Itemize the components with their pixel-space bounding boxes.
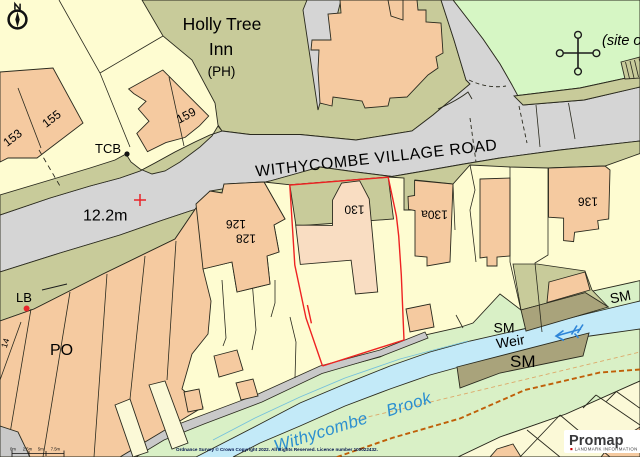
svg-text:(PH): (PH) bbox=[208, 64, 236, 79]
svg-text:0m 2.5m 5m 7.5m: 0m 2.5m 5m 7.5m bbox=[10, 447, 61, 452]
svg-text:PO: PO bbox=[50, 342, 73, 359]
svg-text:LB: LB bbox=[16, 290, 32, 305]
svg-text:Inn: Inn bbox=[209, 39, 233, 59]
svg-text:Holly Tree: Holly Tree bbox=[183, 14, 262, 34]
svg-text:130a: 130a bbox=[421, 208, 448, 222]
svg-text:SM: SM bbox=[510, 352, 536, 371]
svg-text:TCB: TCB bbox=[95, 141, 121, 156]
svg-text:130: 130 bbox=[344, 202, 364, 216]
svg-text:136: 136 bbox=[578, 194, 598, 208]
svg-text:12.2m: 12.2m bbox=[83, 208, 127, 225]
svg-text:126: 126 bbox=[226, 217, 246, 231]
svg-text:(site of: (site of bbox=[602, 33, 640, 49]
svg-text:■ LANDMARK INFORMATION: ■ LANDMARK INFORMATION bbox=[570, 447, 638, 452]
svg-text:128: 128 bbox=[236, 232, 256, 246]
svg-text:Ordnance Survey © Crown Copyri: Ordnance Survey © Crown Copyright 2022. … bbox=[176, 446, 378, 452]
